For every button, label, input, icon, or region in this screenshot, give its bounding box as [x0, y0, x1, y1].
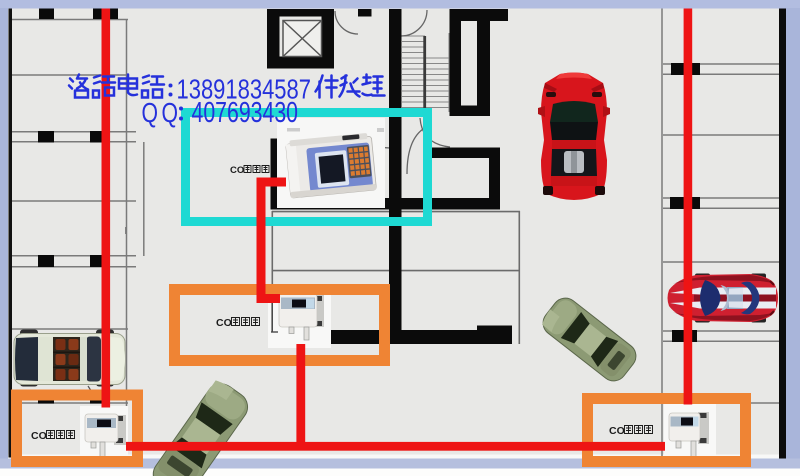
svg-text:Q: Q — [142, 97, 159, 128]
svg-text:CO: CO — [609, 425, 625, 437]
svg-text:CO: CO — [216, 317, 232, 329]
svg-text:Q: Q — [162, 97, 179, 128]
svg-text:CO: CO — [230, 165, 244, 176]
svg-text:CO: CO — [31, 430, 47, 442]
svg-text:407693430: 407693430 — [192, 97, 299, 129]
